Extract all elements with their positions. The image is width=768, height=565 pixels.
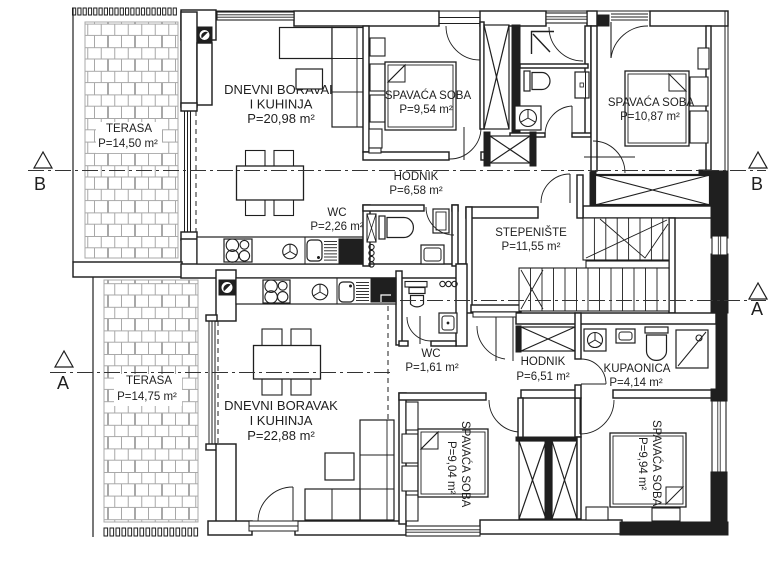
svg-text:TERASA: TERASA [106, 123, 152, 135]
svg-text:P=9,54 m²: P=9,54 m² [399, 104, 453, 116]
svg-text:P=6,51 m²: P=6,51 m² [516, 371, 570, 383]
svg-text:I KUHINJA: I KUHINJA [250, 413, 313, 428]
svg-text:HODNIK: HODNIK [394, 171, 439, 183]
svg-text:SPAVAĆA SOBA: SPAVAĆA SOBA [650, 420, 663, 507]
svg-text:P=14,75 m²: P=14,75 m² [117, 391, 177, 403]
svg-text:I KUHINJA: I KUHINJA [250, 97, 313, 112]
svg-text:DNEVNI BORAVAK: DNEVNI BORAVAK [224, 398, 338, 413]
svg-text:STEPENIŠTE: STEPENIŠTE [495, 226, 567, 239]
svg-text:SPAVAĆA SOBA: SPAVAĆA SOBA [459, 421, 472, 508]
svg-text:P=1,61 m²: P=1,61 m² [405, 362, 459, 374]
svg-text:B: B [751, 174, 763, 194]
svg-text:WC: WC [327, 207, 346, 219]
svg-text:P=2,26 m²: P=2,26 m² [310, 221, 364, 233]
svg-text:HODNIK: HODNIK [521, 356, 566, 368]
svg-text:P=9,94 m²: P=9,94 m² [636, 437, 648, 491]
svg-text:P=22,88 m²: P=22,88 m² [247, 428, 315, 443]
svg-text:P=10,87 m²: P=10,87 m² [620, 111, 680, 123]
svg-text:P=9,04 m²: P=9,04 m² [445, 441, 457, 495]
svg-text:P=20,98 m²: P=20,98 m² [247, 111, 315, 126]
svg-text:SPAVAĆA SOBA: SPAVAĆA SOBA [608, 96, 695, 109]
svg-text:P=14,50 m²: P=14,50 m² [98, 138, 158, 150]
svg-text:SPAVAĆA SOBA: SPAVAĆA SOBA [385, 89, 472, 102]
svg-text:A: A [751, 299, 763, 319]
svg-text:P=11,55 m²: P=11,55 m² [502, 241, 561, 253]
svg-text:WC: WC [421, 348, 440, 360]
svg-text:P=6,58 m²: P=6,58 m² [389, 185, 443, 197]
svg-text:KUPAONICA: KUPAONICA [604, 363, 671, 375]
svg-text:B: B [34, 174, 46, 194]
svg-text:A: A [57, 373, 69, 393]
svg-text:P=4,14 m²: P=4,14 m² [609, 377, 663, 389]
svg-text:TERASA: TERASA [126, 375, 172, 387]
